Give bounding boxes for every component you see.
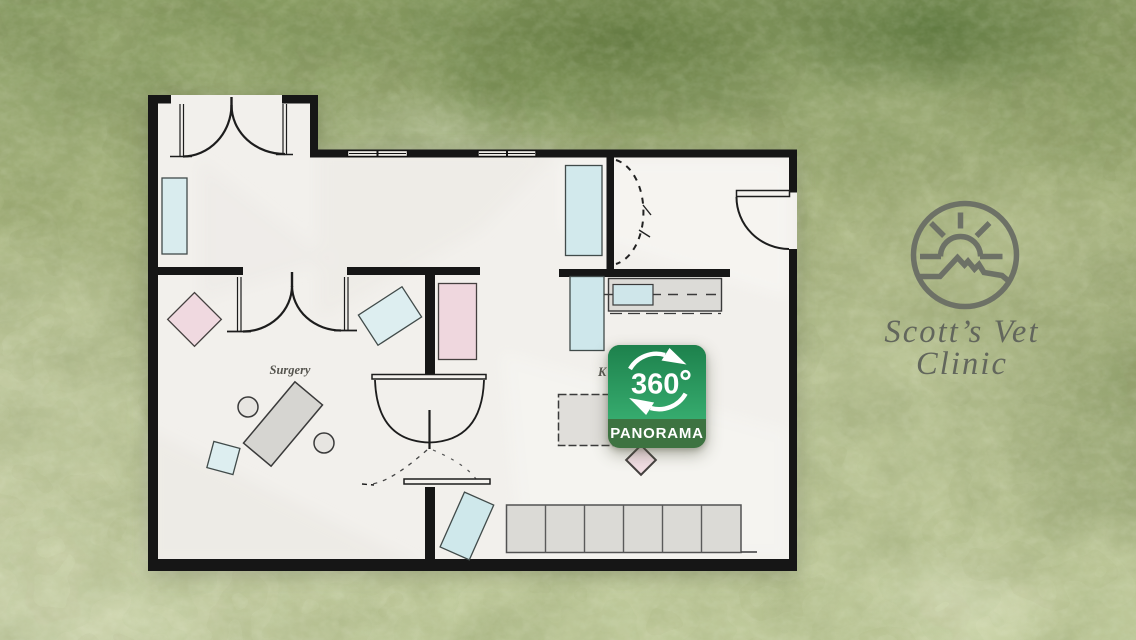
svg-text:360: 360 <box>631 369 679 401</box>
